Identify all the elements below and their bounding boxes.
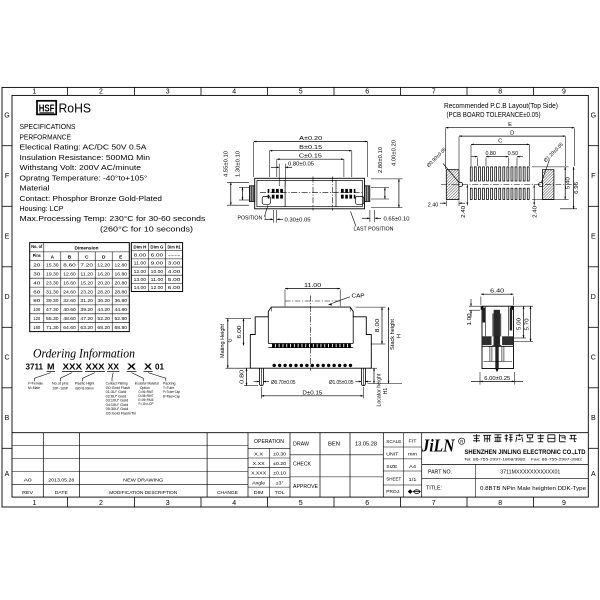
svg-text:40.60: 40.60 — [63, 307, 76, 312]
svg-text:A: A — [51, 255, 55, 261]
svg-text:4.00: 4.00 — [168, 269, 181, 274]
svg-text:Ø0.70±0.05: Ø0.70±0.05 — [271, 380, 296, 386]
svg-text:3.00: 3.00 — [168, 261, 181, 266]
svg-text:LAST POSITION: LAST POSITION — [354, 227, 394, 233]
svg-text:F: F — [591, 173, 595, 180]
svg-text:Ø1.05±0.05: Ø1.05±0.05 — [329, 380, 354, 386]
svg-text:(PCB BOARD TOLERANCE±0.05): (PCB BOARD TOLERANCE±0.05) — [447, 112, 541, 119]
svg-text:C±0.15: C±0.15 — [299, 154, 322, 160]
svg-text:2013.05.28: 2013.05.28 — [48, 477, 74, 483]
svg-text:12.80: 12.80 — [115, 263, 128, 268]
svg-text:mm: mm — [408, 452, 417, 457]
svg-text:G: G — [591, 112, 596, 119]
svg-text:5.40: 5.40 — [566, 177, 572, 189]
svg-text:Mating Height: Mating Height — [220, 323, 226, 358]
svg-text:E: E — [119, 255, 123, 261]
svg-text:10.00: 10.00 — [151, 269, 164, 274]
svg-text:44.20: 44.20 — [97, 307, 110, 312]
svg-text:7.20: 7.20 — [80, 263, 93, 268]
svg-text:0.80±0.05: 0.80±0.05 — [288, 162, 314, 168]
svg-text:No.of pins: No.of pins — [52, 382, 69, 386]
svg-text:23.30: 23.30 — [46, 280, 59, 285]
svg-text:F=10=LCP: F=10=LCP — [139, 402, 154, 406]
svg-text:13.05.28: 13.05.28 — [355, 442, 377, 448]
svg-text:68.80: 68.80 — [115, 325, 128, 330]
svg-text:BEN: BEN — [328, 442, 340, 448]
svg-text:XX: XX — [108, 363, 120, 372]
svg-text:8: 8 — [498, 500, 502, 507]
svg-text:80: 80 — [33, 298, 41, 303]
svg-text:3: 3 — [166, 89, 170, 96]
svg-text:TOL: TOL — [275, 490, 285, 496]
svg-text:No. of: No. of — [31, 244, 42, 249]
svg-text:SIZE: SIZE — [386, 464, 398, 470]
svg-text:C: C — [498, 139, 502, 145]
svg-text:12.00: 12.00 — [134, 269, 147, 274]
svg-text:4: 4 — [232, 89, 236, 96]
svg-text:0.8BTB NPin Male heighten DDK-: 0.8BTB NPin Male heighten DDK-Type — [480, 486, 586, 492]
svg-text:XXX: XXX — [86, 363, 106, 372]
svg-text:JiLN: JiLN — [421, 435, 456, 455]
svg-text:6: 6 — [365, 89, 369, 96]
svg-text:160: 160 — [33, 325, 40, 330]
svg-text:Opratng Temperature: -40°to+10: Opratng Temperature: -40°to+105° — [20, 173, 148, 182]
svg-text:1: 1 — [32, 89, 36, 96]
svg-text:(260°C for 10 seconds): (260°C for 10 seconds) — [100, 224, 193, 233]
svg-text:B±0.15: B±0.15 — [299, 145, 322, 151]
svg-text:1.00: 1.00 — [467, 314, 473, 326]
svg-text:Ordering Information: Ordering Information — [33, 347, 135, 361]
svg-text:40: 40 — [33, 280, 41, 285]
svg-text:SCALE: SCALE — [386, 439, 402, 445]
svg-text:D: D — [591, 294, 596, 301]
svg-text:6.40: 6.40 — [490, 289, 504, 295]
svg-text:D: D — [510, 130, 514, 136]
svg-text:2.80±0.10: 2.80±0.10 — [378, 147, 384, 173]
svg-text:120: 120 — [33, 316, 40, 321]
svg-text:3711: 3711 — [26, 363, 44, 372]
svg-text:4: 4 — [232, 500, 236, 507]
svg-text:F: F — [5, 173, 9, 180]
svg-text:6.00: 6.00 — [237, 325, 243, 338]
svg-text:PERFORMANCE: PERFORMANCE — [20, 132, 72, 141]
svg-text:39.30: 39.30 — [46, 298, 59, 303]
svg-text:3711MXXXXXXXXXXX01: 3711MXXXXXXXXXXX01 — [500, 470, 560, 476]
svg-text:16.60: 16.60 — [63, 280, 76, 285]
svg-text:36.20: 36.20 — [97, 298, 110, 303]
svg-text:2.40: 2.40 — [532, 206, 538, 218]
svg-text:14.00: 14.00 — [134, 285, 147, 290]
svg-text:19.30: 19.30 — [46, 271, 59, 276]
svg-text:12.20: 12.20 — [97, 263, 110, 268]
svg-text:DATE: DATE — [55, 490, 68, 496]
svg-text:DIM: DIM — [254, 490, 264, 496]
svg-text:G: G — [228, 338, 234, 342]
svg-text:52.80: 52.80 — [115, 316, 128, 321]
svg-text:8.00: 8.00 — [375, 319, 381, 333]
svg-text:Max.Processing Temp: 230°C for: Max.Processing Temp: 230°C for 30-60 sec… — [20, 214, 206, 223]
svg-text:Recommended P.C.B Layout(Top S: Recommended P.C.B Layout(Top Side) — [444, 103, 558, 110]
svg-text:13.00: 13.00 — [134, 277, 147, 282]
svg-text:0.50: 0.50 — [508, 151, 519, 157]
svg-text:080=8.00mm: 080=8.00mm — [75, 387, 94, 391]
svg-text:2.40: 2.40 — [428, 202, 439, 208]
svg-text:4.00±0.20: 4.00±0.20 — [392, 140, 398, 166]
svg-text:G5:Gold Flash/Tin: G5:Gold Flash/Tin — [106, 411, 137, 415]
svg-text:POSITION 1: POSITION 1 — [238, 216, 267, 222]
svg-text:Ø1.20±0.05: Ø1.20±0.05 — [543, 142, 565, 164]
svg-text:UNIT: UNIT — [386, 451, 398, 457]
svg-text:8: 8 — [498, 89, 502, 96]
svg-text:1/1: 1/1 — [409, 477, 417, 483]
svg-text:11.00: 11.00 — [304, 283, 321, 289]
svg-text:MODIFICATION DESCRIPTION: MODIFICATION DESCRIPTION — [109, 490, 178, 496]
svg-text:Locator height: Locator height — [377, 373, 383, 407]
svg-text:±0.10: ±0.10 — [273, 471, 286, 477]
svg-text:A: A — [5, 471, 10, 478]
svg-text:0.80: 0.80 — [239, 370, 245, 384]
svg-text:8.60: 8.60 — [63, 263, 76, 268]
svg-text:Dim H1: Dim H1 — [168, 244, 181, 249]
svg-text:39.20: 39.20 — [80, 307, 93, 312]
svg-text:NEW DRAWING: NEW DRAWING — [123, 477, 163, 483]
svg-text:5.00: 5.00 — [168, 277, 181, 282]
svg-text:Pins: Pins — [33, 253, 41, 258]
svg-text:68.20: 68.20 — [97, 325, 110, 330]
svg-text:E: E — [508, 122, 512, 128]
svg-text:2.40: 2.40 — [461, 206, 467, 218]
svg-text:M: M — [47, 363, 55, 372]
svg-text:B: B — [5, 415, 10, 422]
svg-text:Contact: Phosphor Bronze Gold-: Contact: Phosphor Bronze Gold-Plated — [20, 194, 163, 203]
svg-text:PROJ.: PROJ. — [386, 489, 400, 495]
svg-text:CHANGE: CHANGE — [217, 490, 238, 496]
svg-text:23.20: 23.20 — [80, 289, 93, 294]
svg-text:A4: A4 — [409, 464, 416, 470]
svg-text:APPROVE: APPROVE — [293, 484, 319, 490]
svg-text:32.60: 32.60 — [63, 298, 76, 303]
svg-text:±0.20: ±0.20 — [273, 461, 286, 467]
svg-text:20P~160P: 20P~160P — [53, 387, 69, 391]
svg-text:9: 9 — [562, 89, 566, 96]
svg-text:11.20: 11.20 — [80, 271, 93, 276]
svg-text:X.XX: X.XX — [253, 461, 266, 467]
svg-text:12.60: 12.60 — [63, 271, 76, 276]
svg-text:Insulation Resistance: 500MΩ: Insulation Resistance: 500MΩ Min — [20, 153, 151, 162]
svg-text:Withstang Volt: 200V AC/minute: Withstang Volt: 200V AC/minute — [20, 163, 142, 172]
svg-text:1.30±0.10: 1.30±0.10 — [235, 151, 241, 177]
svg-text:CAP: CAP — [352, 294, 365, 300]
svg-text:Electical Rating: AC/DC 50V 0.: Electical Rating: AC/DC 50V 0.5A — [20, 143, 147, 152]
svg-text:63.20: 63.20 — [80, 325, 93, 330]
svg-text:47.20: 47.20 — [80, 316, 93, 321]
svg-text:A: A — [591, 471, 596, 478]
svg-text:6.00: 6.00 — [168, 285, 181, 290]
svg-text:Housing: LCP: Housing: LCP — [20, 204, 64, 213]
svg-text:2: 2 — [99, 500, 103, 507]
svg-text:55.30: 55.30 — [46, 316, 59, 321]
svg-text:D: D — [4, 294, 9, 301]
svg-text:28.80: 28.80 — [115, 289, 128, 294]
svg-text:31.30: 31.30 — [46, 289, 59, 294]
svg-text:X.X: X.X — [254, 451, 264, 457]
svg-text:X: X — [127, 363, 137, 372]
svg-text:5: 5 — [299, 89, 303, 96]
svg-text:C: C — [591, 354, 596, 361]
svg-text:9: 9 — [562, 500, 566, 507]
svg-text:52.20: 52.20 — [97, 316, 110, 321]
svg-text:16.20: 16.20 — [97, 271, 110, 276]
svg-text:7: 7 — [432, 89, 436, 96]
svg-text:PART NO.: PART NO. — [428, 470, 452, 476]
svg-text:31.20: 31.20 — [80, 298, 93, 303]
svg-text:0.30±0.05: 0.30±0.05 — [285, 218, 311, 224]
svg-text:Plastic Hight: Plastic Hight — [75, 382, 95, 386]
svg-text:3: 3 — [166, 500, 170, 507]
svg-text:Tel: 86-755-2997-1808/3982: Tel: 86-755-2997-1808/3982 Fax: 86-755-2… — [464, 457, 583, 462]
svg-text:5.70: 5.70 — [524, 319, 530, 331]
svg-text:2: 2 — [99, 89, 103, 96]
svg-text:TITLE:: TITLE: — [426, 486, 442, 492]
svg-text:01: 01 — [155, 363, 165, 372]
svg-text:100: 100 — [33, 307, 40, 312]
svg-text:20.20: 20.20 — [97, 280, 110, 285]
svg-text:60: 60 — [33, 289, 41, 294]
svg-text:G: G — [4, 112, 9, 119]
svg-text:M=Male: M=Male — [28, 386, 40, 390]
svg-text:B: B — [68, 255, 72, 261]
svg-text:6.00: 6.00 — [151, 253, 164, 258]
svg-text:0.65±0.10: 0.65±0.10 — [384, 217, 410, 223]
svg-text:15.20: 15.20 — [80, 280, 93, 285]
svg-text:E: E — [5, 233, 10, 240]
svg-text:11.00: 11.00 — [134, 261, 147, 266]
svg-text:FIT: FIT — [409, 438, 417, 444]
svg-text:REV: REV — [22, 490, 34, 496]
svg-text:9.00: 9.00 — [151, 261, 164, 266]
svg-text:28.20: 28.20 — [97, 289, 110, 294]
svg-text:16.80: 16.80 — [115, 271, 128, 276]
svg-text:H: H — [397, 334, 403, 338]
svg-text:7: 7 — [432, 500, 436, 507]
svg-text:12.00: 12.00 — [151, 285, 164, 290]
svg-text:Stack height: Stack height — [390, 318, 396, 350]
svg-text:6.00±0.25: 6.00±0.25 — [484, 376, 510, 382]
svg-text:A0: A0 — [24, 477, 32, 483]
svg-text:XXX: XXX — [63, 363, 83, 372]
svg-text:64.60: 64.60 — [63, 325, 76, 330]
svg-text:30: 30 — [33, 271, 41, 276]
svg-text:C: C — [4, 354, 9, 361]
svg-text:H1: H1 — [383, 388, 389, 395]
svg-text:X: X — [144, 363, 153, 372]
svg-text:X.XXX: X.XXX — [251, 471, 267, 477]
svg-text:5: 5 — [299, 500, 303, 507]
svg-text:20.80: 20.80 — [115, 280, 128, 285]
svg-text:Dim G: Dim G — [150, 244, 164, 249]
svg-text:±0.30: ±0.30 — [273, 451, 286, 457]
svg-text:4.55±0.10: 4.55±0.10 — [224, 151, 230, 177]
svg-text:D±0.15: D±0.15 — [302, 390, 322, 396]
svg-text:0.80: 0.80 — [485, 151, 496, 157]
svg-text:44.80: 44.80 — [115, 307, 128, 312]
svg-text:47.30: 47.30 — [46, 307, 59, 312]
svg-text:R: R — [460, 439, 463, 444]
svg-text:1: 1 — [32, 500, 36, 507]
svg-text:6.95: 6.95 — [574, 182, 580, 194]
svg-text:71.30: 71.30 — [46, 325, 59, 330]
svg-text:RoHS: RoHS — [59, 101, 92, 116]
svg-text:B=Reel+Cap: B=Reel+Cap — [163, 394, 180, 398]
svg-text:D: D — [102, 255, 106, 261]
svg-text:20: 20 — [33, 263, 41, 268]
svg-text:5.00: 5.00 — [517, 318, 523, 330]
svg-text:A±0.20: A±0.20 — [299, 136, 322, 142]
svg-text:SHENZHEN JINLING ELECTRONIC CO: SHENZHEN JINLING ELECTRONIC CO.,LTD — [465, 449, 586, 456]
svg-text:15.30: 15.30 — [46, 263, 59, 268]
svg-text:Dimension: Dimension — [75, 245, 99, 251]
svg-text:SHEET: SHEET — [386, 477, 401, 483]
svg-text:Dim H: Dim H — [133, 244, 146, 249]
svg-text:Angle: Angle — [252, 480, 265, 486]
svg-text:E: E — [591, 233, 596, 240]
svg-text:±3°: ±3° — [276, 480, 284, 486]
svg-text:11.00: 11.00 — [151, 277, 164, 282]
svg-text:DRAW: DRAW — [293, 442, 309, 448]
svg-text:SPECIFICATIONS: SPECIFICATIONS — [20, 122, 76, 131]
svg-text:OPERATION: OPERATION — [254, 439, 284, 445]
svg-text:8.00: 8.00 — [134, 253, 147, 258]
svg-text:B: B — [591, 415, 596, 422]
svg-text:Material: Material — [20, 184, 50, 193]
svg-text:6: 6 — [365, 500, 369, 507]
svg-text:----: ---- — [168, 253, 181, 258]
svg-text:48.60: 48.60 — [63, 316, 76, 321]
svg-text:CHECK: CHECK — [293, 462, 312, 468]
svg-text:36.80: 36.80 — [115, 298, 128, 303]
svg-text:24.60: 24.60 — [63, 289, 76, 294]
svg-text:C: C — [85, 255, 89, 261]
